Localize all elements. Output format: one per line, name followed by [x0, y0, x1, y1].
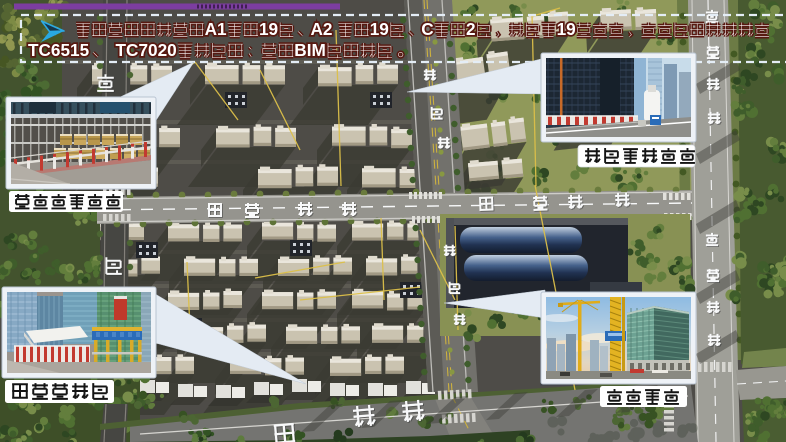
svg-text:BIM: BIM	[294, 40, 326, 60]
svg-text:TC7020: TC7020	[106, 40, 177, 60]
svg-text:19: 19	[259, 19, 278, 39]
svg-text:A2: A2	[311, 19, 338, 39]
svg-text:TC6515: TC6515	[28, 40, 90, 60]
svg-text:2: 2	[466, 19, 476, 39]
svg-text:19: 19	[557, 19, 576, 39]
svg-text:19: 19	[370, 19, 389, 39]
svg-text:A1: A1	[205, 19, 227, 39]
svg-text:C: C	[421, 19, 433, 39]
